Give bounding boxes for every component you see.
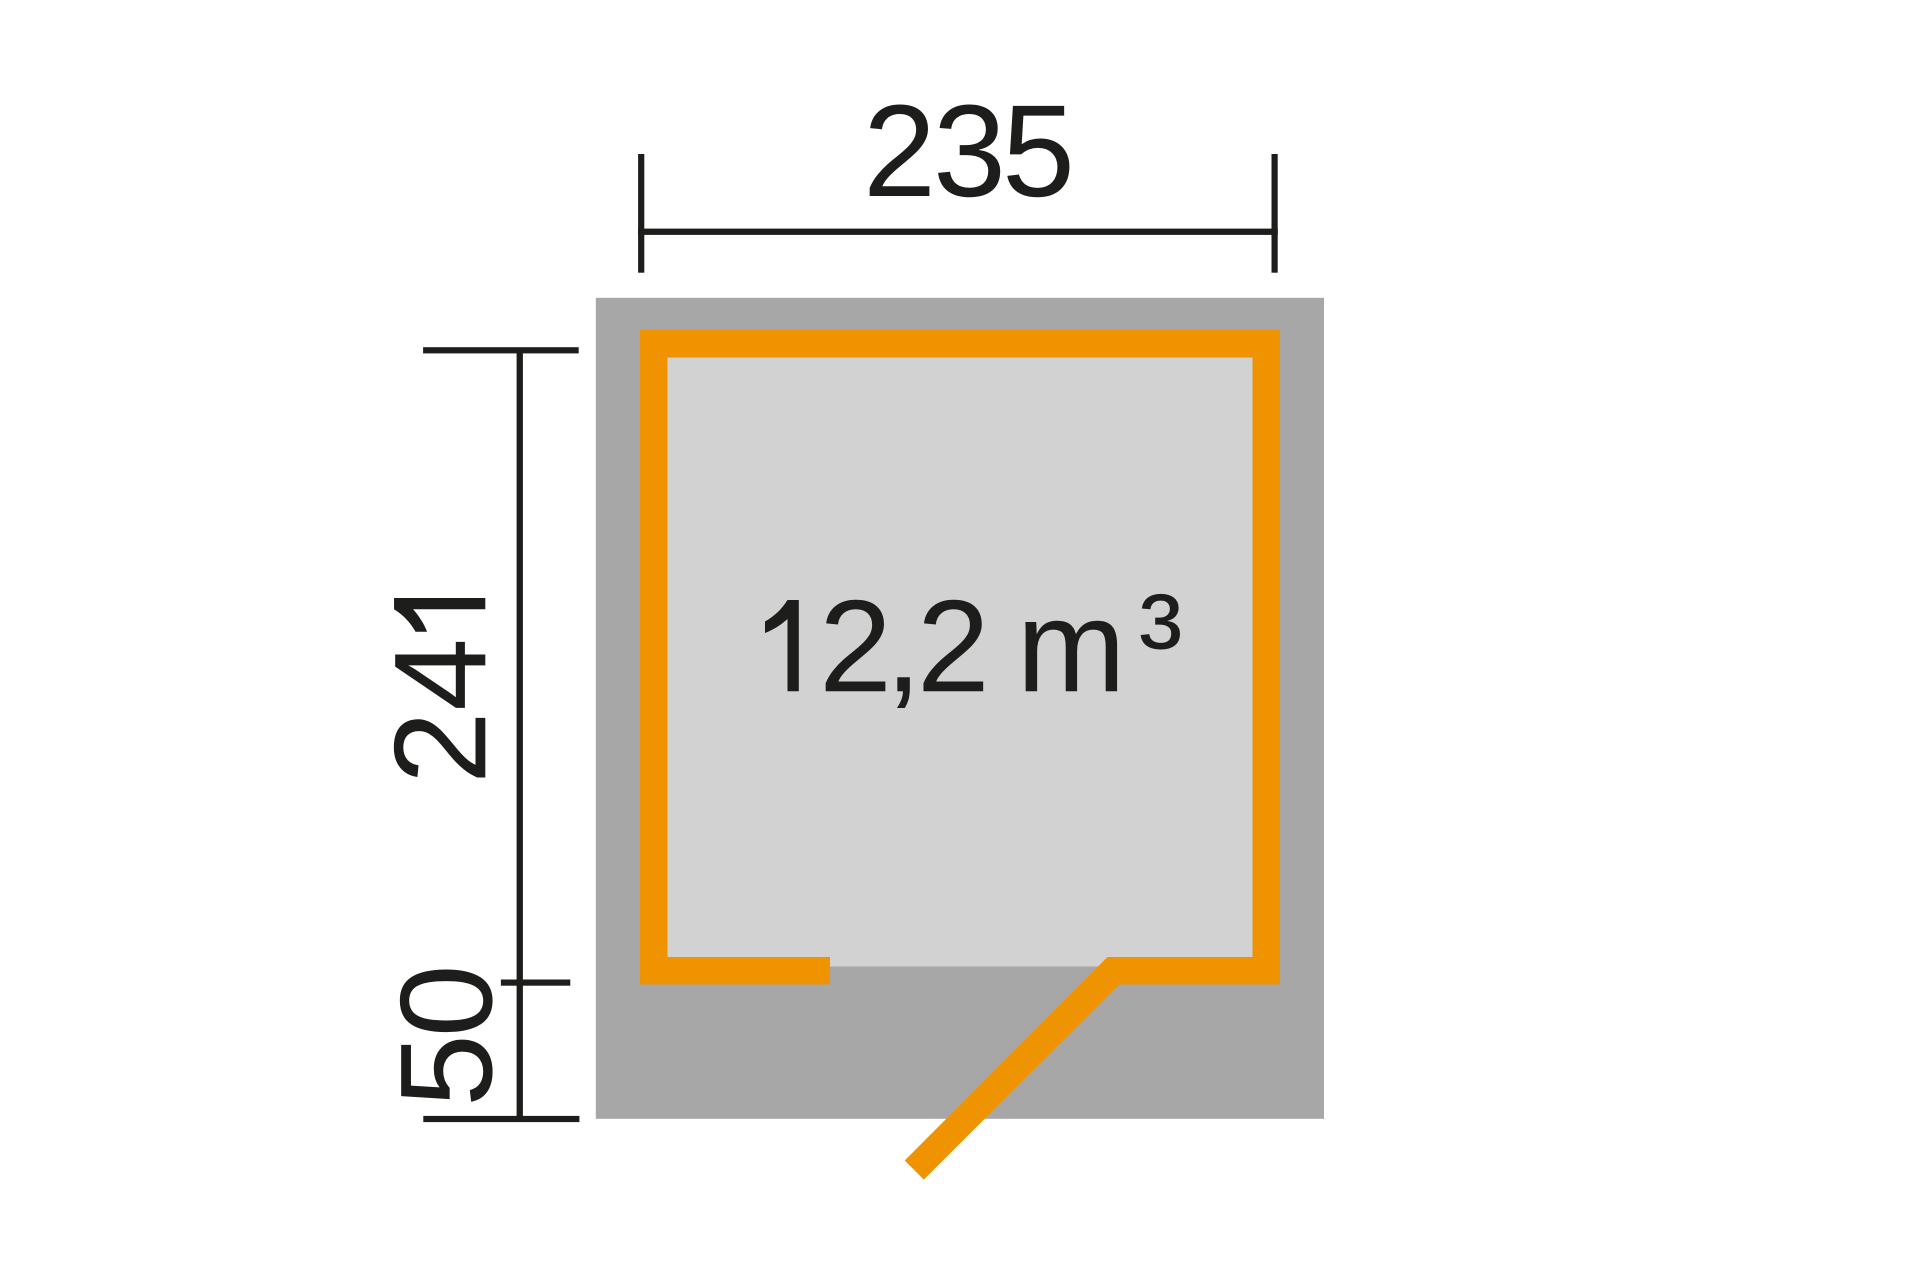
svg-text:50: 50 bbox=[372, 964, 519, 1107]
svg-text:235: 235 bbox=[863, 77, 1075, 224]
svg-text:24: 24 bbox=[366, 638, 513, 784]
